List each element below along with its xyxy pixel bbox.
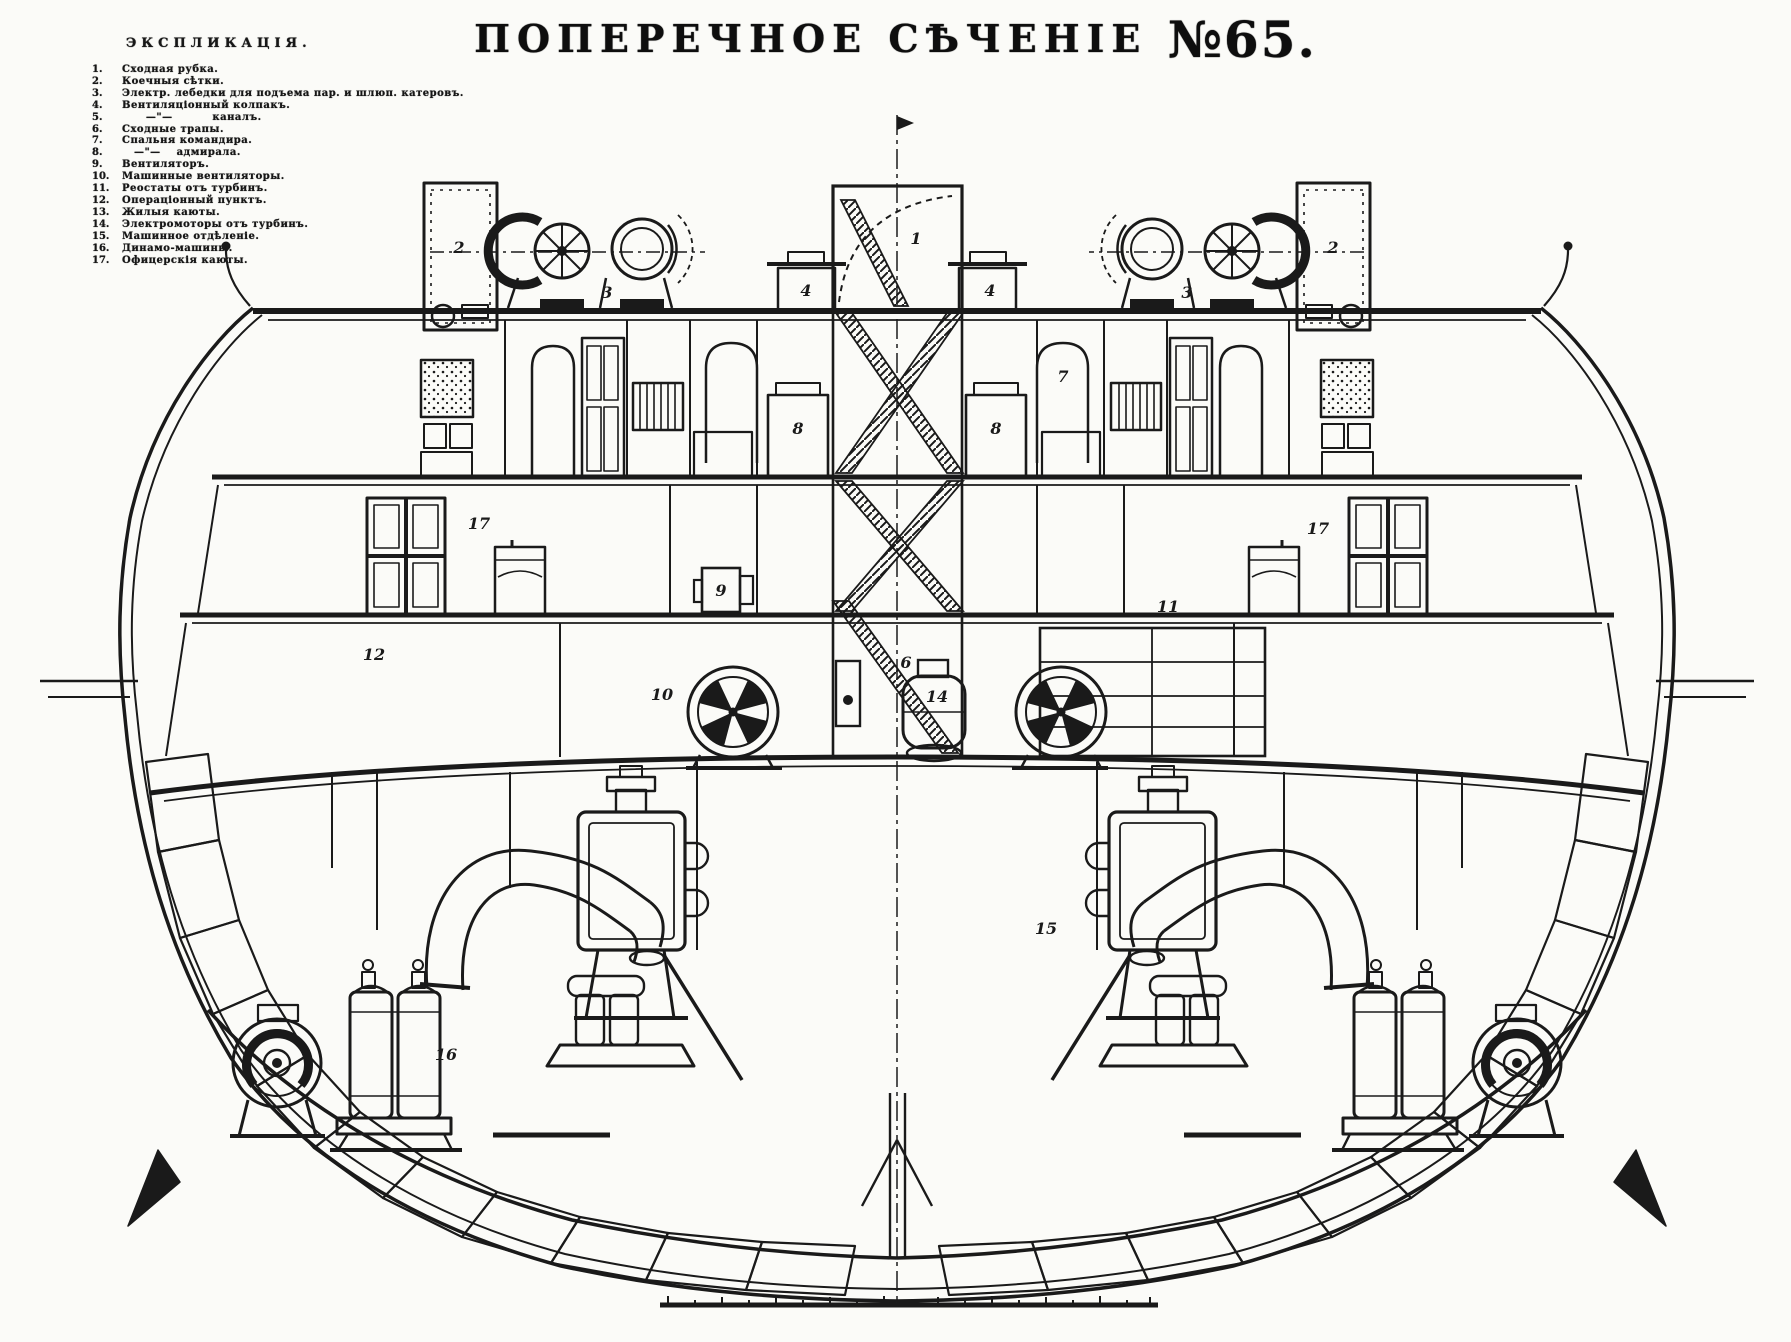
callout-8: 8 xyxy=(989,419,1001,438)
callout-11: 11 xyxy=(1157,597,1179,616)
callout-10: 10 xyxy=(651,685,673,704)
callout-17: 17 xyxy=(468,514,490,533)
callout-2: 2 xyxy=(1326,238,1338,257)
callout-6: 6 xyxy=(900,653,911,672)
callout-3: 3 xyxy=(601,283,612,302)
left-half xyxy=(40,183,897,1301)
callout-16: 16 xyxy=(435,1045,457,1064)
callout-1: 1 xyxy=(910,229,921,248)
callout-9: 9 xyxy=(715,581,726,600)
callout-4: 4 xyxy=(800,281,811,300)
callout-12: 12 xyxy=(363,645,385,664)
callout-7: 7 xyxy=(1057,367,1068,386)
callout-8: 8 xyxy=(791,419,803,438)
duct-box xyxy=(836,661,860,726)
cross-section-drawing: 1223344788171791211614101516 xyxy=(0,0,1791,1342)
callout-17: 17 xyxy=(1307,519,1329,538)
callout-2: 2 xyxy=(452,238,464,257)
masthead-flag-icon xyxy=(897,116,914,130)
callout-14: 14 xyxy=(926,687,948,706)
callout-3: 3 xyxy=(1181,283,1192,302)
scanned-sheet: ПОПЕРЕЧНОЕ СѢЧЕНІЕ №65. ЭКСПЛИКАЦІЯ. 1.С… xyxy=(0,0,1791,1342)
callout-15: 15 xyxy=(1035,919,1057,938)
right-half xyxy=(897,183,1754,1301)
callout-4: 4 xyxy=(984,281,995,300)
